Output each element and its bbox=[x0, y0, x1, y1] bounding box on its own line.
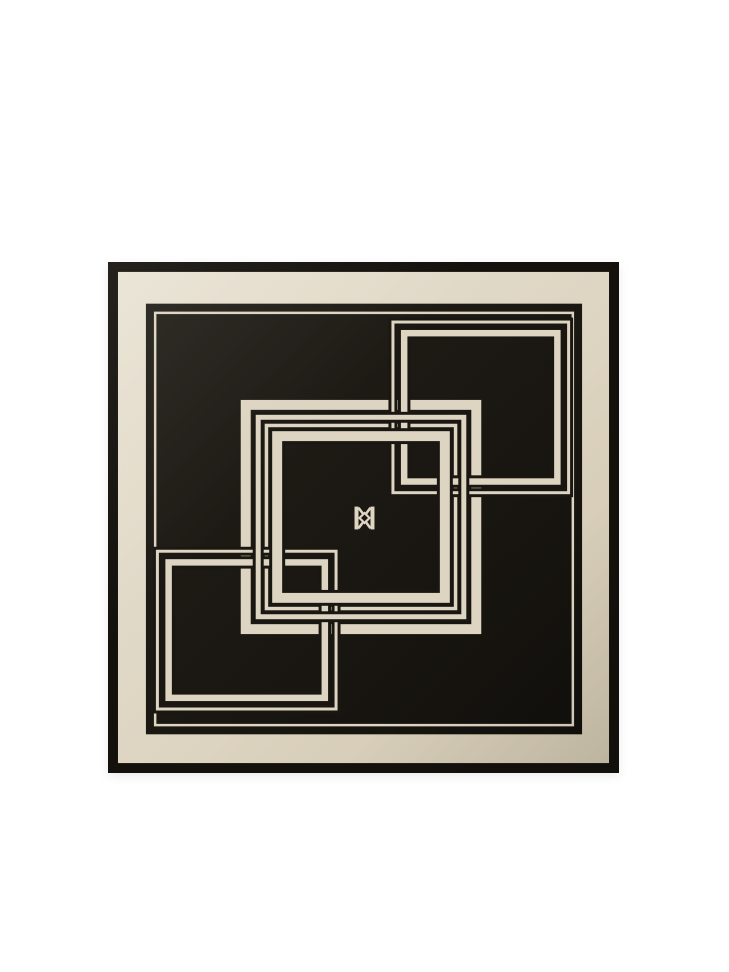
product-photo bbox=[0, 0, 729, 972]
fabric-sheen-overlay bbox=[108, 262, 619, 773]
scarf-image bbox=[108, 262, 619, 773]
scarf bbox=[108, 262, 619, 773]
